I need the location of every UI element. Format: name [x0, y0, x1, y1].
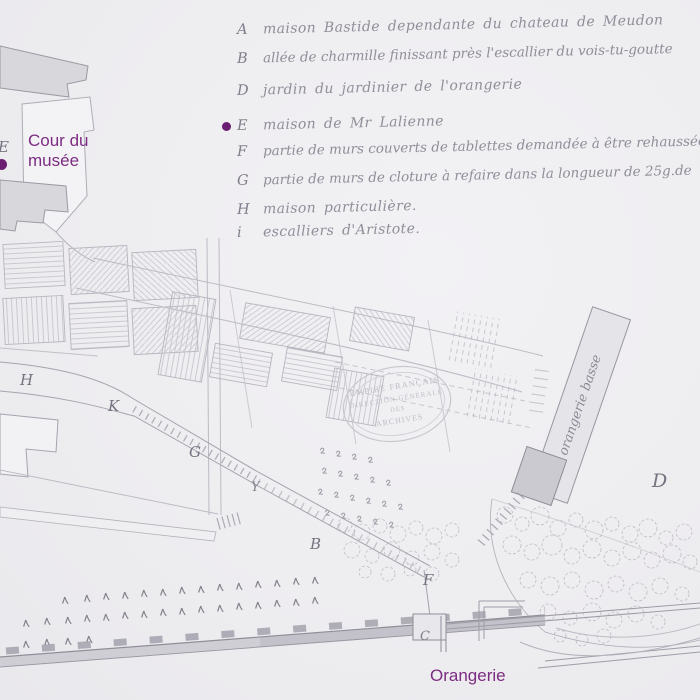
central-shrubs: [338, 518, 459, 581]
plan-letter-y: Y: [251, 480, 261, 495]
legend-letter: A: [237, 21, 263, 38]
plan-letter-f: F: [422, 571, 434, 589]
legend-letter: D: [237, 82, 263, 99]
stamp-line4: ARCHIVES: [375, 412, 424, 428]
lower-left-structures: [0, 414, 240, 541]
plan-letter-b: B: [309, 535, 321, 553]
legend-letter: H: [237, 201, 263, 218]
orangerie-label-text: Orangerie: [430, 666, 506, 686]
plan-letter-k: K: [107, 397, 120, 415]
orangerie-label[interactable]: Orangerie: [430, 666, 506, 686]
plan-canvas: EMPIRE FRANÇAIS DIRECTION GÉNÉRALE DES A…: [0, 0, 700, 700]
legend-letter: F: [237, 143, 263, 160]
cour-du-musee-line1: Cour du: [28, 131, 88, 151]
legend-letter: i: [237, 224, 263, 241]
plan-letter-g: G: [189, 443, 201, 461]
espalier-plant-marks: [318, 448, 402, 527]
plan-letter-c: C: [420, 629, 430, 644]
plan-letter-h: H: [19, 371, 34, 389]
legend-letter: G: [237, 172, 263, 189]
plan-letter-d: D: [651, 470, 667, 492]
central-garden-plots: [158, 292, 518, 426]
plan-letter-e: E: [0, 138, 9, 156]
legend-letter: B: [237, 50, 263, 67]
cour-du-musee-line2: musée: [28, 151, 88, 171]
hatch-marks: [536, 370, 542, 412]
stamp-line3: DES: [390, 405, 406, 414]
cour-du-musee-label[interactable]: Cour du musée: [28, 131, 88, 171]
legend-marker-dot[interactable]: [222, 122, 231, 131]
orangerie-terrace: [447, 601, 700, 668]
crenellated-wall: [0, 610, 545, 667]
strip-end-block: [481, 446, 567, 543]
legend-letter: E: [237, 117, 263, 134]
plan-drawing: EMPIRE FRANÇAIS DIRECTION GÉNÉRALE DES A…: [0, 0, 700, 700]
